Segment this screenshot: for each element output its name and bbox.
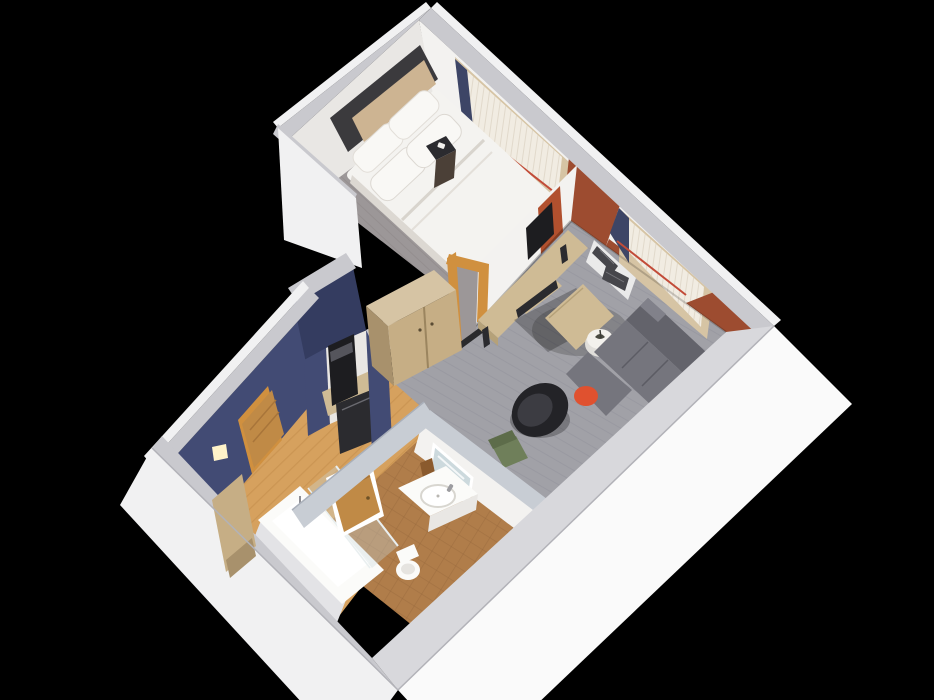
coffee-maker xyxy=(328,334,358,406)
light-switch xyxy=(212,444,228,461)
floorplan-3d-render xyxy=(0,0,934,700)
orange-ottoman xyxy=(574,386,598,406)
render-canvas xyxy=(0,0,934,700)
